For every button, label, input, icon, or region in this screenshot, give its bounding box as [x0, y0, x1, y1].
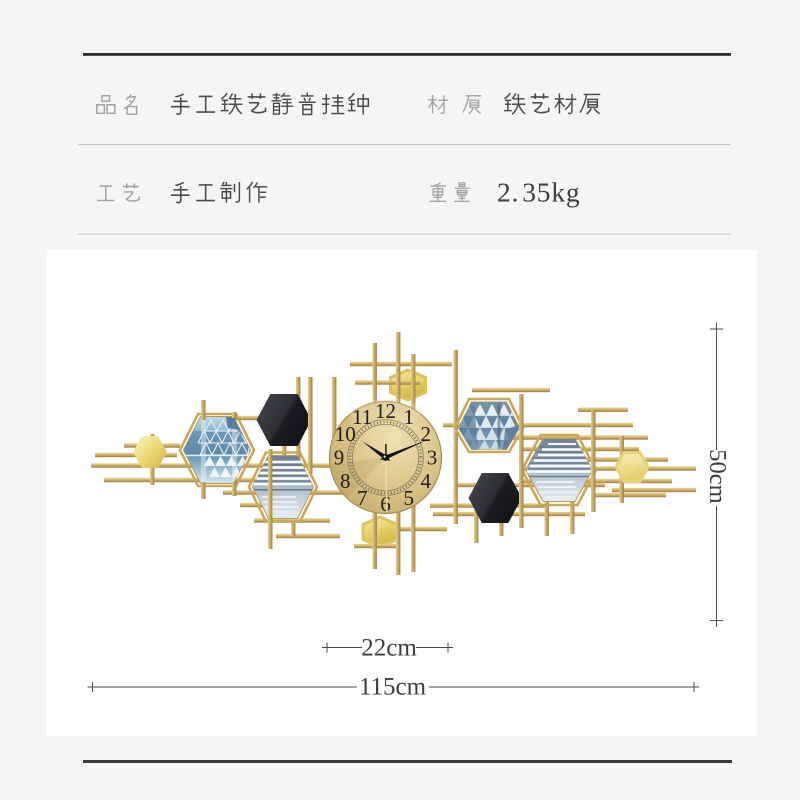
svg-text:4: 4: [421, 469, 432, 493]
svg-text:7: 7: [357, 486, 368, 510]
svg-text:8: 8: [340, 469, 351, 493]
svg-text:11: 11: [352, 405, 372, 429]
svg-text:22cm: 22cm: [361, 635, 417, 662]
svg-text:3: 3: [427, 446, 438, 470]
svg-text:1: 1: [404, 405, 415, 429]
svg-text:115cm: 115cm: [359, 674, 427, 701]
svg-text:5: 5: [404, 486, 415, 510]
svg-text:2: 2: [421, 422, 432, 446]
svg-text:9: 9: [334, 446, 345, 470]
svg-text:50cm: 50cm: [704, 449, 731, 503]
svg-text:6: 6: [380, 492, 391, 516]
svg-text:2.35kg: 2.35kg: [497, 177, 580, 208]
svg-text:12: 12: [375, 399, 396, 423]
